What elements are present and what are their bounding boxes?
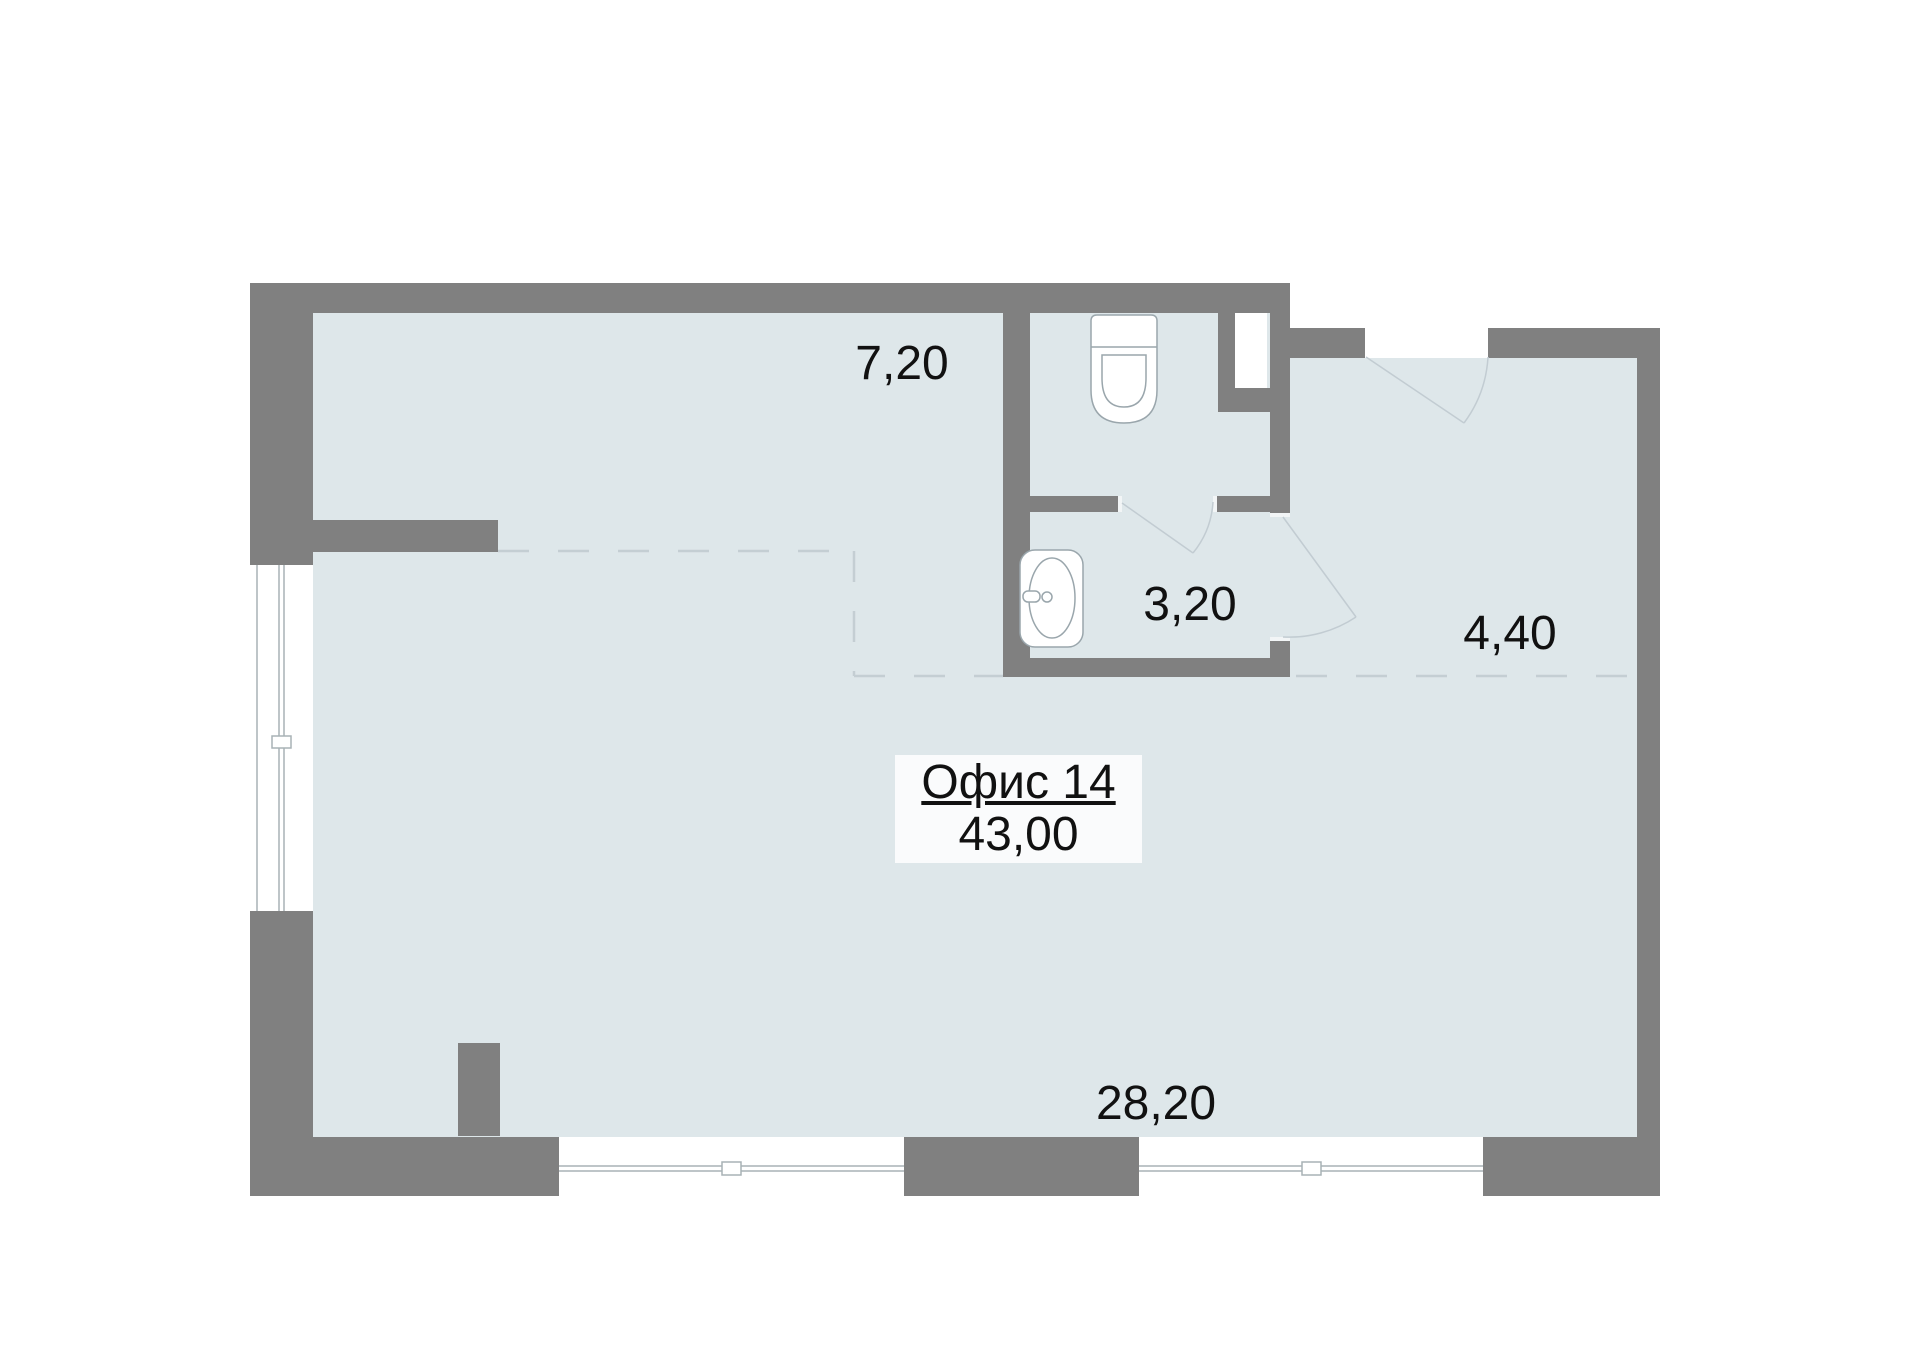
wall-entry-right: [1488, 328, 1637, 358]
wall-entry-left: [1290, 328, 1365, 358]
office-label-box: Офис 14 43,00: [895, 755, 1142, 863]
vent-duct-shaft: [1235, 313, 1267, 388]
room-area-label-main-room: 28,20: [1096, 1080, 1216, 1128]
wall-bathroom-bottom: [1003, 658, 1290, 677]
jamb-cap: [1270, 637, 1290, 641]
room-area-label-sink-room: 3,20: [1143, 581, 1236, 629]
wall-top: [250, 283, 1290, 313]
room-area-label-zone-top-left: 7,20: [855, 340, 948, 388]
wall-right: [1637, 328, 1660, 1196]
wall-bottom-left: [250, 1137, 559, 1196]
jamb-cap: [1118, 496, 1122, 512]
floor-main: [313, 313, 1290, 1137]
jamb-cap: [1213, 496, 1217, 512]
wall-pillar: [458, 1043, 500, 1136]
wall-bathroom-left: [1003, 313, 1030, 677]
window-bottom-2: [1139, 1137, 1483, 1196]
wall-bathroom-divider-right: [1213, 496, 1270, 512]
floor-plan: 7,20 3,20 4,40 28,20 Офис 14 43,00: [0, 0, 1920, 1357]
wall-partition-stub: [313, 520, 498, 552]
wall-bottom-middle: [904, 1137, 1139, 1196]
wall-bathroom-right-upper: [1270, 283, 1290, 517]
window-bottom-1: [559, 1137, 904, 1196]
room-area-label-hallway: 4,40: [1463, 610, 1556, 658]
office-total-area: 43,00: [958, 809, 1078, 861]
wall-bottom-right: [1483, 1137, 1660, 1196]
jamb-cap: [1270, 513, 1290, 517]
wall-left-upper: [250, 283, 313, 565]
office-title: Офис 14: [921, 757, 1115, 809]
wall-bathroom-divider-left: [1030, 496, 1122, 512]
wall-duct-bottom: [1218, 388, 1270, 412]
floor-entry-section: [1290, 358, 1637, 1137]
window-left: [250, 565, 313, 911]
